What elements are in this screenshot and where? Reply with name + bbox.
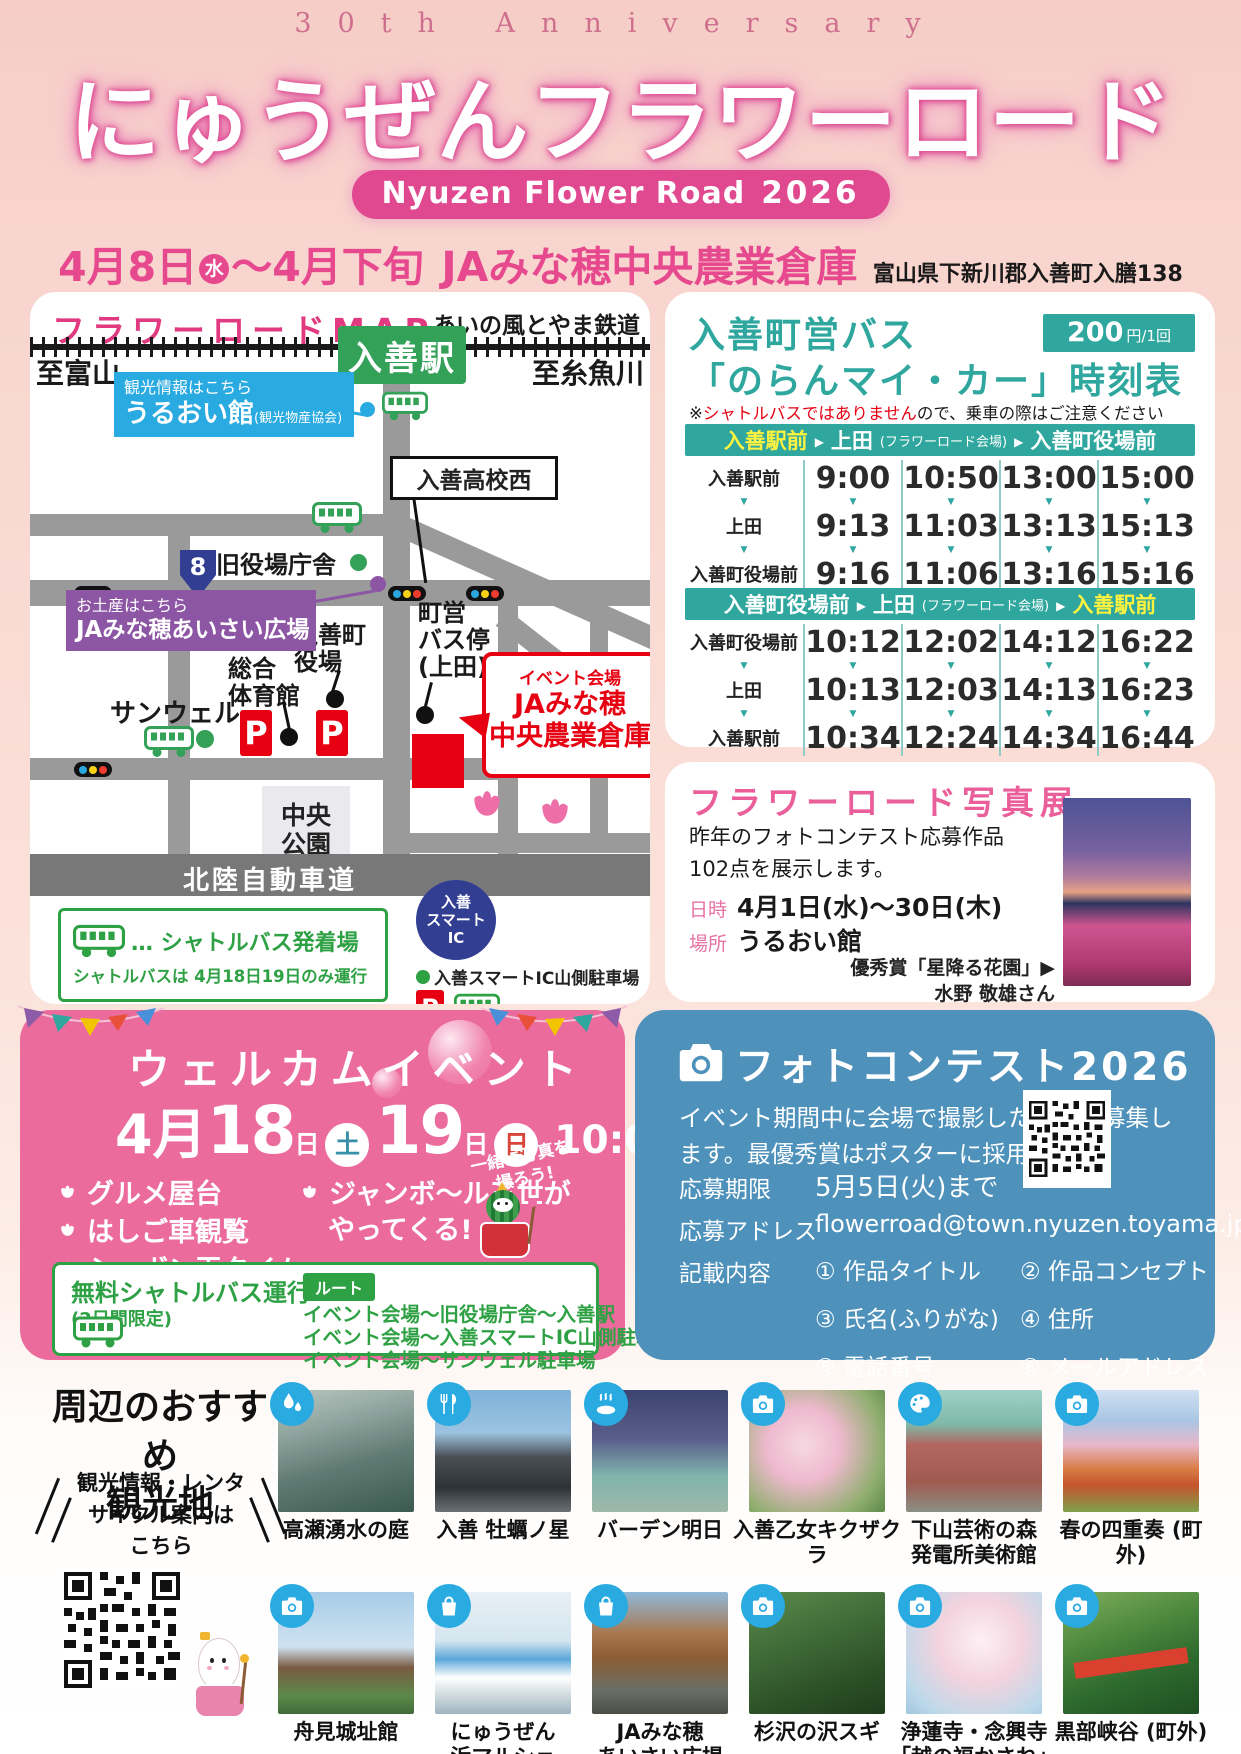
attractions-qr-note: 観光情報・レンタ サイクル案内は こちら [58,1468,264,1563]
tulip-bullet-icon [58,1182,77,1201]
mascot-blush [224,1666,229,1670]
exhibition-place-row: 場所うるおい館 [689,922,862,958]
direction1-header: 入善駅前上田(フラワーロード会場)入善町役場前 [685,424,1195,456]
bus-icon [73,1315,123,1349]
town-hall-dot [326,690,344,708]
sunwell-label: サンウェル [110,700,240,729]
contest-item: ⑤ 電話番号 [815,1348,1020,1382]
deadline-label: 応募期限 [679,1170,771,1204]
bus-stop-label: 町営 バス停 (上田) [418,600,490,681]
page-title: にゅうぜんフラワーロード [0,48,1241,181]
timetable-direction2: 入善町役場前 10:12 12:02 14:12 16:22 上田 10:13 … [685,624,1195,756]
attraction-label: 杉沢の沢スギ [732,1720,902,1745]
guest-line2: やってくる! [328,1208,473,1247]
mascot-cape [480,1222,530,1258]
camera-icon [1055,1584,1099,1628]
event-item-guest2: やってくる! [328,1208,473,1247]
down-arrow-icon [685,544,803,556]
bus-icon [382,390,428,422]
venue-building [412,734,464,788]
dir2-via-note: (フラワーロード会場) [922,595,1049,614]
souvenir-note: お土産はこちら [76,596,306,616]
bus-icon [73,923,125,959]
down-arrow-icon [1097,496,1195,508]
parking-icon: P [316,710,348,756]
time-cell: 12:03 [901,672,999,708]
shuttle-title: 無料シャトルバス運行 [71,1273,311,1308]
down-arrow-icon [803,544,901,556]
shuttle-legend-title: … シャトルバス発着場 [131,925,359,957]
time-cell: 16:44 [1097,720,1195,756]
attraction-label: 高瀬湧水の庭 [261,1518,431,1543]
exhibition-title: フラワーロード写真展 [689,776,1079,824]
stop-name: 上田 [685,672,803,708]
photo-exhibition-card: フラワーロード写真展 昨年のフォトコンテスト応募作品 102点を展示します。 日… [665,762,1215,1002]
timetable-note: ※シャトルバスではありませんので、乗車の際はご注意ください [689,400,1164,424]
down-arrow-icon [999,496,1097,508]
time-cell: 10:34 [803,720,901,756]
timetable-title-1: 入善町営バス [689,306,917,358]
subtitle-year: 2026 [761,175,859,211]
contest-item: ④ 住所 [1020,1300,1225,1334]
dir1-via-note: (フラワーロード会場) [880,431,1007,450]
direction2-header: 入善町役場前上田(フラワーロード会場)入善駅前 [685,588,1195,620]
direction-toyama: 至富山 [36,358,120,389]
event-item: はしご車観覧 [58,1210,249,1249]
time-cell: 9:13 [803,508,901,544]
mascot-staff-tip [528,1198,537,1207]
route-line: イベント会場〜サンウェル駐車場 [303,1344,596,1373]
mascot-eye [210,1658,214,1663]
stop-name: 入善駅前 [685,720,803,756]
souvenir-callout: お土産はこちら JAみな穂あいさい広場 [66,590,316,651]
tourism-qr-code [62,1570,182,1690]
attraction-label: 舟見城址館 [261,1720,431,1745]
note-mark: ※ [689,404,703,423]
time-cell: 10:50 [901,460,999,496]
event-month: 4月 [115,1090,207,1169]
bus-icon [312,500,362,535]
event-item: グルメ屋台 [58,1172,222,1211]
down-arrow-icon [1097,544,1195,556]
time-cell: 14:12 [999,624,1097,660]
highway-label: 北陸自動車道 [120,860,420,897]
flyer-poster: 30th Anniversary にゅうぜんフラワーロード Nyuzen Flo… [0,0,1241,1754]
down-arrow-icon [685,660,803,672]
qr-code-icon [64,1572,180,1688]
mascot-head [198,1638,240,1690]
down-arrow-icon [803,660,901,672]
crown-icon [200,1632,210,1640]
attraction-label: 春の四重奏 (町外) [1046,1518,1216,1568]
onsen-icon [584,1382,628,1426]
time-cell: 16:23 [1097,672,1195,708]
down-arrow-icon [803,708,901,720]
map-road [406,833,650,853]
address-value: flowerroad@town.nyuzen.toyama.jp [815,1210,1241,1238]
arrow-right-icon [1014,431,1023,450]
info-note: 観光情報はこちら [124,378,344,398]
venue-callout-pointer [456,708,490,739]
camera-icon [898,1584,942,1628]
arrow-right-icon [815,431,824,450]
down-arrow-icon [999,660,1097,672]
down-arrow-icon [901,660,999,672]
direction-itoigawa: 至糸魚川 [532,358,644,389]
qr-code-icon [1029,1101,1105,1177]
down-arrow-icon [1097,660,1195,672]
date-range: 〜4月下旬 [231,243,424,291]
info-name: うるおい館 [124,399,254,429]
attraction-label: バーデン明日 [575,1518,745,1543]
mascot-face [493,1198,513,1212]
tulip-icon [536,792,574,830]
date-start: 4月8日 [58,243,197,291]
tulip-bullet-icon [58,1220,77,1239]
time-cell: 15:00 [1097,460,1195,496]
award-photo [1063,798,1191,986]
time-cell: 10:12 [803,624,901,660]
date-start-day: 水 [199,254,229,284]
camera-icon [677,1042,725,1082]
sunwell-dot [196,730,214,748]
anniversary-text: 30th Anniversary [0,8,1241,39]
time-cell: 15:16 [1097,556,1195,592]
parking-icon: P [240,710,272,756]
parking-icon: P [416,990,444,1004]
attraction-label: 入善 牡蠣ノ星 [418,1518,588,1543]
palette-icon [898,1382,942,1426]
note-red: シャトルバスではありません [703,404,917,423]
stop-name: 入善町役場前 [685,556,803,592]
event-day2: 19 [375,1092,463,1169]
free-shuttle-box: 無料シャトルバス運行 (2日間限定) ルート イベント会場〜旧役場庁舎〜入善駅 … [52,1262,599,1356]
mascot-blush [207,1666,212,1670]
arrow-right-icon [1056,595,1065,614]
route-badge: ルート [303,1273,375,1301]
bag-icon [584,1584,628,1628]
souvenir-location-dot [370,576,386,592]
tulip-icon [468,784,506,822]
ic-parking-dot [416,970,430,984]
shuttle-legend: … シャトルバス発着場 シャトルバスは 4月18日19日のみ運行 [58,908,388,1002]
venue-tag: イベント会場 [486,664,650,689]
contest-qr-code [1023,1090,1111,1188]
fare-unit: 円/1回 [1126,325,1171,346]
mascot-eye [222,1658,226,1663]
exhibition-date: 4月1日(水)〜30日(木) [737,893,1002,922]
down-arrow-icon [685,708,803,720]
time-cell: 11:03 [901,508,999,544]
time-cell: 10:13 [803,672,901,708]
time-cell: 16:22 [1097,624,1195,660]
time-cell: 14:13 [999,672,1097,708]
time-cell: 12:24 [901,720,999,756]
souvenir-name: JAみな穂あいさい広場 [76,616,306,645]
note-rest: ので、乗車の際はご注意ください [917,404,1164,423]
mascot-eye [497,1202,500,1205]
attraction-label: にゅうぜん 浜マルシェ [418,1720,588,1754]
photo-contest-card: フォトコンテスト2026 イベント期間中に会場で撮影した写真を募集し ます。最優… [635,1010,1215,1360]
attraction-label: 下山芸術の森 発電所美術館 [889,1518,1059,1568]
time-cell: 15:13 [1097,508,1195,544]
info-sub: (観光物産協会) [254,411,342,426]
tulip-bullet-icon [300,1182,319,1201]
timetable-title-2: 「のらんマイ・カー」時刻表 [689,352,1183,404]
welcome-event-card: ウェルカムイベント 4月18日土19日日10:00〜16:00 グルメ屋台 はし… [20,1010,625,1360]
place-label: 場所 [689,933,727,955]
event-day1: 18 [207,1092,295,1169]
time-cell: 12:02 [901,624,999,660]
deadline-value: 5月5日(火)まで [815,1167,998,1204]
down-arrow-icon [999,544,1097,556]
dir1-to: 入善町役場前 [1030,425,1156,455]
subtitle-badge: Nyuzen Flower Road2026 [351,170,889,219]
mascot-staff-tip [240,1654,249,1663]
exhibition-date-row: 日時4月1日(水)〜30日(木) [689,888,1002,924]
water-icon [270,1382,314,1426]
info-callout: 観光情報はこちら うるおい館(観光物産協会) [114,372,354,437]
dir1-from: 入善駅前 [724,425,808,455]
dir1-via: 上田 [831,425,873,455]
map-card: フラワーロードMAP あいの風とやま鉄道 入善駅 至富山 至糸魚川 観光情報はこ… [30,292,650,1004]
attraction-label: JAみな穂 あいさい広場 [575,1720,745,1754]
time-cell: 13:13 [999,508,1097,544]
event-item-label: はしご車観覧 [87,1210,249,1249]
camera-icon [741,1382,785,1426]
attraction-label: 黒部峡谷 (町外) [1046,1720,1216,1745]
old-hall-label: 旧役場庁舎 [216,552,336,579]
date-label: 日時 [689,899,727,921]
traffic-light-icon [74,762,112,777]
mascot-jumboru [472,1182,542,1260]
mascot-cape [194,1684,246,1718]
time-cell: 9:16 [803,556,901,592]
attraction-label: 浄蓮寺・念興寺 「越の福かさね」 [889,1720,1059,1754]
camera-icon [741,1584,785,1628]
time-cell: 11:06 [901,556,999,592]
stop-name: 入善町役場前 [685,624,803,660]
content-label: 記載内容 [679,1254,771,1288]
venue-callout-name: JAみな穂 中央農業倉庫 [486,689,650,754]
fare-amount: 200 [1067,314,1123,352]
event-day1-suffix: 日 [294,1125,319,1161]
station-nyuzen: 入善駅 [338,326,466,384]
time-cell: 13:16 [999,556,1097,592]
dir2-from: 入善町役場前 [724,589,850,619]
stop-name: 入善駅前 [685,460,803,496]
attraction-label: 入善乙女キクザクラ [732,1518,902,1568]
arrow-right-icon [857,595,866,614]
venue-name: JAみな穂中央農業倉庫 [441,243,857,291]
shuttle-legend-note: シャトルバスは 4月18日19日のみ運行 [73,963,367,987]
dir2-via: 上田 [873,589,915,619]
dir2-to: 入善駅前 [1072,589,1156,619]
highway: 北陸自動車道 [30,854,650,896]
contest-required-items: ① 作品タイトル ② 作品コンセプト ③ 氏名(ふりがな) ④ 住所 ⑤ 電話番… [815,1252,1225,1382]
bus-icon [454,992,500,1004]
mascot-eye [505,1202,508,1205]
down-arrow-icon [901,496,999,508]
stop-name: 上田 [685,508,803,544]
event-title: ウェルカムイベント [128,1036,586,1097]
down-arrow-icon [901,708,999,720]
down-arrow-icon [685,496,803,508]
fare-badge: 200円/1回 [1043,314,1195,352]
bus-icon [144,724,194,759]
exhibition-place: うるおい館 [737,927,862,956]
timetable-direction1: 入善駅前 9:00 10:50 13:00 15:00 上田 9:13 11:0… [685,460,1195,592]
contest-item: ② 作品コンセプト [1020,1252,1225,1286]
down-arrow-icon [999,708,1097,720]
down-arrow-icon [901,544,999,556]
restaurant-icon [427,1382,471,1426]
contest-item: ① 作品タイトル [815,1252,1020,1286]
camera-icon [1055,1382,1099,1426]
time-cell: 14:34 [999,720,1097,756]
map-road [383,382,410,858]
contest-item: ⑥ メールアドレス [1020,1348,1225,1382]
camera-icon [270,1584,314,1628]
event-dateline: 4月8日水〜4月下旬 JAみな穂中央農業倉庫 富山県下新川郡入善町入膳138 [0,233,1241,293]
contest-item: ③ 氏名(ふりがな) [815,1300,1020,1334]
bus-timetable-card: 入善町営バス 200円/1回 「のらんマイ・カー」時刻表 ※シャトルバスではあり… [665,292,1215,747]
address-label: 応募アドレス [679,1212,817,1246]
smart-ic-badge: 入善 スマート IC [416,880,496,960]
school-label: 入善高校西 [390,456,558,500]
ic-parking-label: 入善スマートIC山側駐車場 [434,964,639,989]
time-cell: 9:00 [803,460,901,496]
event-item-label: グルメ屋台 [87,1172,222,1211]
exhibition-award: 優秀賞「星降る花園」▶ 水野 敬雄さん [715,956,1055,1007]
venue-callout: イベント会場 JAみな穂 中央農業倉庫 [482,652,650,778]
traffic-light-icon [466,586,504,601]
venue-address: 富山県下新川郡入善町入膳138 [873,262,1183,287]
mascot-egg [190,1630,254,1720]
info-location-dot [360,402,375,417]
down-arrow-icon [1097,708,1195,720]
event-day1-dow: 土 [325,1123,369,1167]
old-hall-dot [350,554,367,571]
exhibition-desc: 昨年のフォトコンテスト応募作品 102点を展示します。 [689,822,1004,885]
bag-icon [427,1584,471,1628]
down-arrow-icon [803,496,901,508]
subtitle-en: Nyuzen Flower Road [381,176,745,211]
time-cell: 13:00 [999,460,1097,496]
contest-title: フォトコンテスト2026 [735,1036,1192,1092]
